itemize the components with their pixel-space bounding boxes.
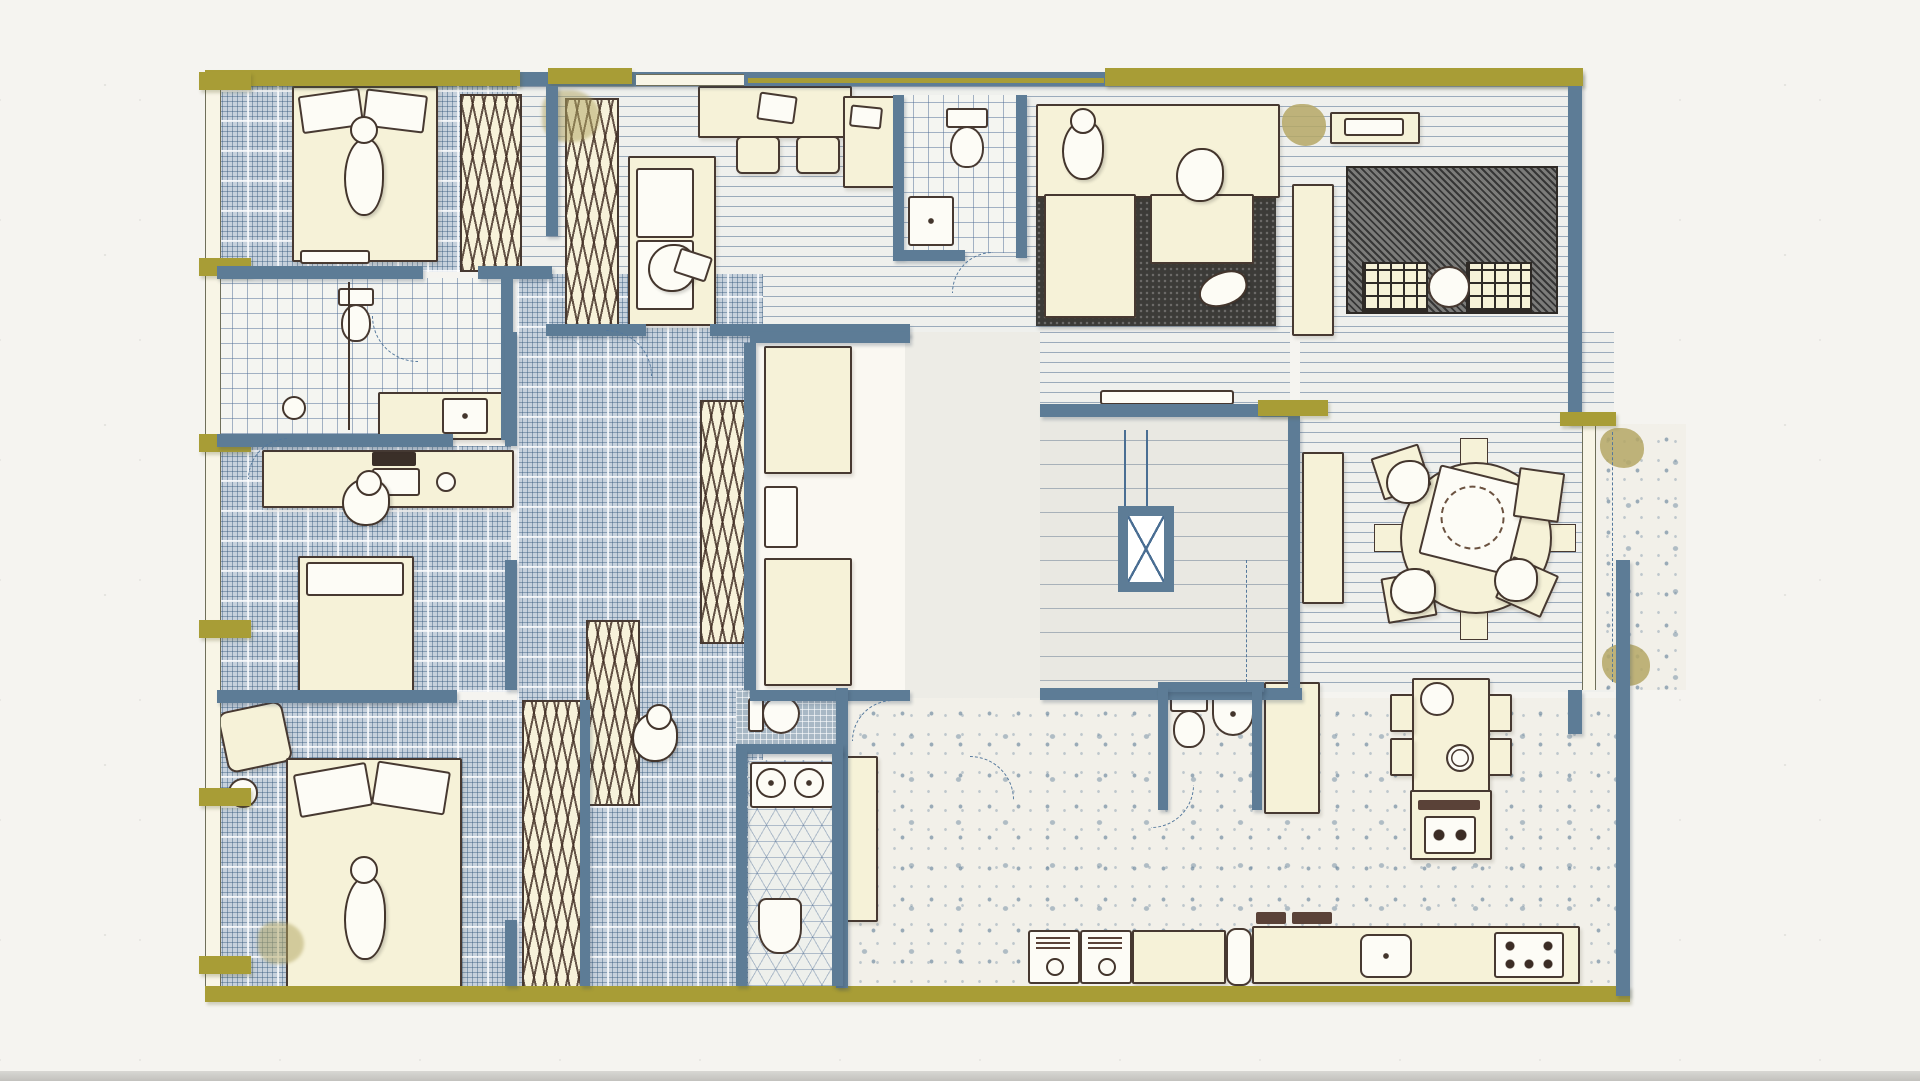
sofa-chaise (1044, 194, 1136, 318)
circulation-guide-line (1246, 560, 1248, 682)
wall-corridor-left-a (505, 332, 517, 446)
wardrobe-bedroom-3 (522, 700, 584, 990)
laundry-counter (1132, 930, 1226, 984)
person-dining-3 (1494, 558, 1538, 602)
kitchen-chair (1488, 694, 1512, 732)
beam-top-right (1105, 68, 1583, 86)
person-head (646, 704, 672, 730)
sofa-ottoman (1150, 194, 1254, 264)
console-bench (1292, 184, 1334, 336)
wall-bedroom1-bottom-a (217, 266, 423, 279)
person-head (350, 856, 378, 884)
plant (1282, 104, 1326, 146)
wall-corridor-left-c (505, 920, 517, 986)
kitchen-chair (1390, 694, 1414, 732)
speaker-left (1362, 262, 1428, 312)
bed-twin-a (764, 346, 852, 474)
wall-bathroom1-right (1016, 95, 1027, 258)
dryer-vents (1088, 937, 1122, 949)
person-head (356, 470, 382, 496)
plant-shadow (258, 922, 304, 964)
laptop-screen (372, 452, 416, 466)
person-lying-bedroom3 (344, 876, 386, 960)
stair-landing-shelf (1100, 390, 1234, 405)
person-head (350, 116, 378, 144)
mouse (436, 472, 456, 492)
bath3-toilet (758, 898, 802, 954)
wall-twin-top (750, 332, 910, 343)
sofa-cushion (636, 168, 694, 238)
sheet-bottom-edge (0, 1071, 1920, 1081)
column-left-5 (199, 788, 251, 806)
person-sofa-2 (1176, 148, 1224, 202)
toilet-bowl (1173, 710, 1205, 748)
washer (1028, 930, 1080, 984)
wall-right-lower (1616, 560, 1630, 996)
dining-cabinet (1302, 452, 1344, 604)
floor-hall (905, 332, 1040, 700)
wall-bathroom2-bottom (217, 434, 453, 447)
wall-lavabo-right (1252, 688, 1262, 810)
dryer-door (1098, 958, 1116, 976)
pizza (1434, 479, 1512, 557)
wall-wardrobe3-right (580, 700, 590, 986)
speaker-right (1466, 262, 1532, 312)
title-block: 2 PLANTA DE LAYOUT - PROJETO DE ARQUITET… (0, 1008, 1920, 1078)
book (849, 104, 883, 129)
wall-bedroom1-bottom-b (478, 266, 552, 279)
island-hood-bar (1418, 800, 1480, 810)
wall-bath3-right (832, 750, 843, 986)
bed-bench (300, 250, 370, 264)
wall-bath3-left (736, 750, 747, 986)
stair-rail (1124, 430, 1126, 506)
cooktop-2-burner (1424, 816, 1476, 854)
nightstand (764, 486, 798, 548)
toilet-tank (946, 108, 988, 128)
wall-stairs-top (1040, 404, 1290, 417)
beam-balcony-top (1560, 412, 1616, 426)
window-wall-left (205, 86, 221, 988)
window-balcony (1582, 424, 1596, 690)
wall-bedroom1-right (546, 86, 558, 236)
bath2-sink (442, 398, 488, 434)
wall-right-upper (1568, 86, 1582, 424)
bath3-sink (794, 768, 824, 798)
beam-top-office (548, 68, 632, 84)
wall-twin-left (744, 343, 756, 690)
pantry-cabinet (1264, 682, 1320, 814)
desk-chair (796, 136, 840, 174)
stair-rail (1146, 430, 1148, 506)
toilet-bowl (950, 126, 984, 168)
washer-door (1046, 958, 1064, 976)
wall-bath3-top (736, 744, 843, 754)
beam-top-left (205, 70, 520, 86)
small-appliance (1292, 912, 1332, 924)
wall-bedroom2-3-divider (217, 690, 457, 703)
wall-balcony-bottom (1568, 690, 1582, 734)
person-lying-bedroom1 (344, 138, 384, 216)
desk-chair (736, 136, 780, 174)
bed-twin-b (764, 558, 852, 686)
wall-bottom (205, 986, 1630, 1002)
wall-corridor-left-b (505, 560, 517, 690)
toilet-bowl (341, 304, 371, 342)
fruit-bowl (1420, 682, 1454, 716)
kitchen-chair (1488, 738, 1512, 776)
wall-stairs-right (1288, 416, 1300, 688)
beam-dining (1258, 400, 1328, 416)
shower-partition (348, 282, 350, 430)
person-dining-1 (1386, 460, 1430, 504)
kitchen-sink (1360, 934, 1412, 978)
bath3-sink (756, 768, 786, 798)
floor-plan-sheet: 2 PLANTA DE LAYOUT - PROJETO DE ARQUITET… (0, 0, 1920, 1081)
column-left-4 (199, 620, 251, 638)
wall-twin-bottom (750, 690, 910, 701)
subwoofer (1428, 266, 1470, 308)
column-left-6 (199, 956, 251, 974)
person-head (1070, 108, 1096, 134)
washer-vents (1036, 937, 1070, 949)
kitchen-chair (1390, 738, 1414, 776)
stove-5-burner (1494, 932, 1564, 978)
elevator-shaft (1118, 506, 1174, 592)
balcony-guide-line (1612, 432, 1614, 682)
small-appliance (1256, 912, 1286, 924)
dryer (1080, 930, 1132, 984)
balcony-plant (1600, 428, 1644, 468)
person-dining-2 (1390, 568, 1436, 614)
column-left-1 (199, 72, 251, 90)
wall-bathroom1-bottom (893, 250, 965, 261)
notebook (756, 91, 798, 124)
wall-office-bottom-a (546, 324, 646, 336)
plate (1446, 744, 1474, 772)
shower-head (282, 396, 306, 420)
bath1-sink (908, 196, 954, 246)
wall-bathroom1-left (893, 95, 904, 258)
wall-lavabo-top (1158, 682, 1264, 692)
sill-top (748, 78, 1104, 83)
wardrobe-corridor (586, 620, 640, 806)
wardrobe-bedroom-1 (460, 94, 522, 272)
media-tray (1344, 118, 1404, 136)
window-top (636, 74, 744, 86)
dining-chair (1513, 467, 1566, 523)
pillow (306, 562, 404, 596)
tall-door (1226, 928, 1252, 986)
